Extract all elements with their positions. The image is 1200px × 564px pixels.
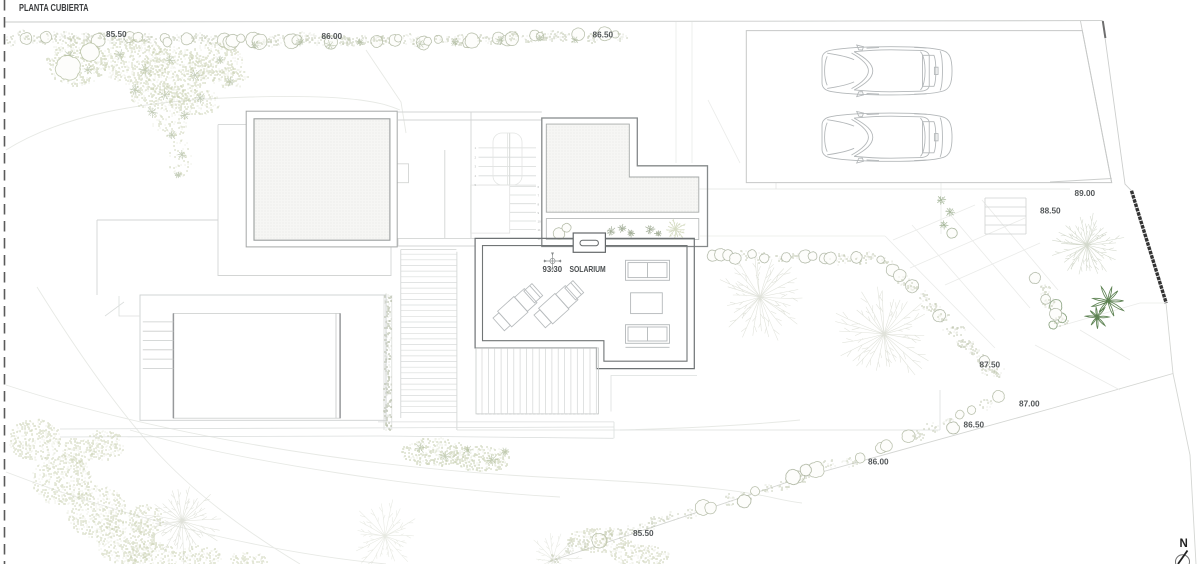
- svg-text:87.00: 87.00: [1019, 398, 1040, 408]
- svg-text:8: 8: [538, 202, 540, 206]
- svg-text:4: 4: [475, 174, 477, 178]
- svg-text:10: 10: [538, 220, 542, 224]
- svg-text:6: 6: [538, 185, 540, 189]
- svg-text:SOLARIUM: SOLARIUM: [570, 264, 606, 274]
- svg-text:89.00: 89.00: [1075, 188, 1096, 198]
- svg-text:3: 3: [475, 165, 477, 169]
- svg-text:2: 2: [475, 155, 477, 159]
- svg-text:PLANTA CUBIERTA: PLANTA CUBIERTA: [19, 3, 89, 14]
- svg-text:85.50: 85.50: [633, 528, 654, 538]
- svg-text:86.00: 86.00: [868, 456, 889, 466]
- svg-text:88.50: 88.50: [1040, 206, 1061, 216]
- svg-text:7: 7: [538, 194, 540, 198]
- svg-text:11: 11: [538, 228, 541, 232]
- svg-text:9: 9: [538, 211, 540, 215]
- svg-text:86.00: 86.00: [322, 31, 343, 41]
- svg-text:87.50: 87.50: [980, 359, 1001, 369]
- svg-text:86.50: 86.50: [964, 420, 985, 430]
- svg-text:85.50: 85.50: [106, 29, 127, 39]
- svg-text:N: N: [1180, 538, 1188, 550]
- svg-text:93.30: 93.30: [543, 264, 563, 274]
- svg-text:86.50: 86.50: [593, 30, 614, 40]
- svg-text:1: 1: [475, 146, 477, 150]
